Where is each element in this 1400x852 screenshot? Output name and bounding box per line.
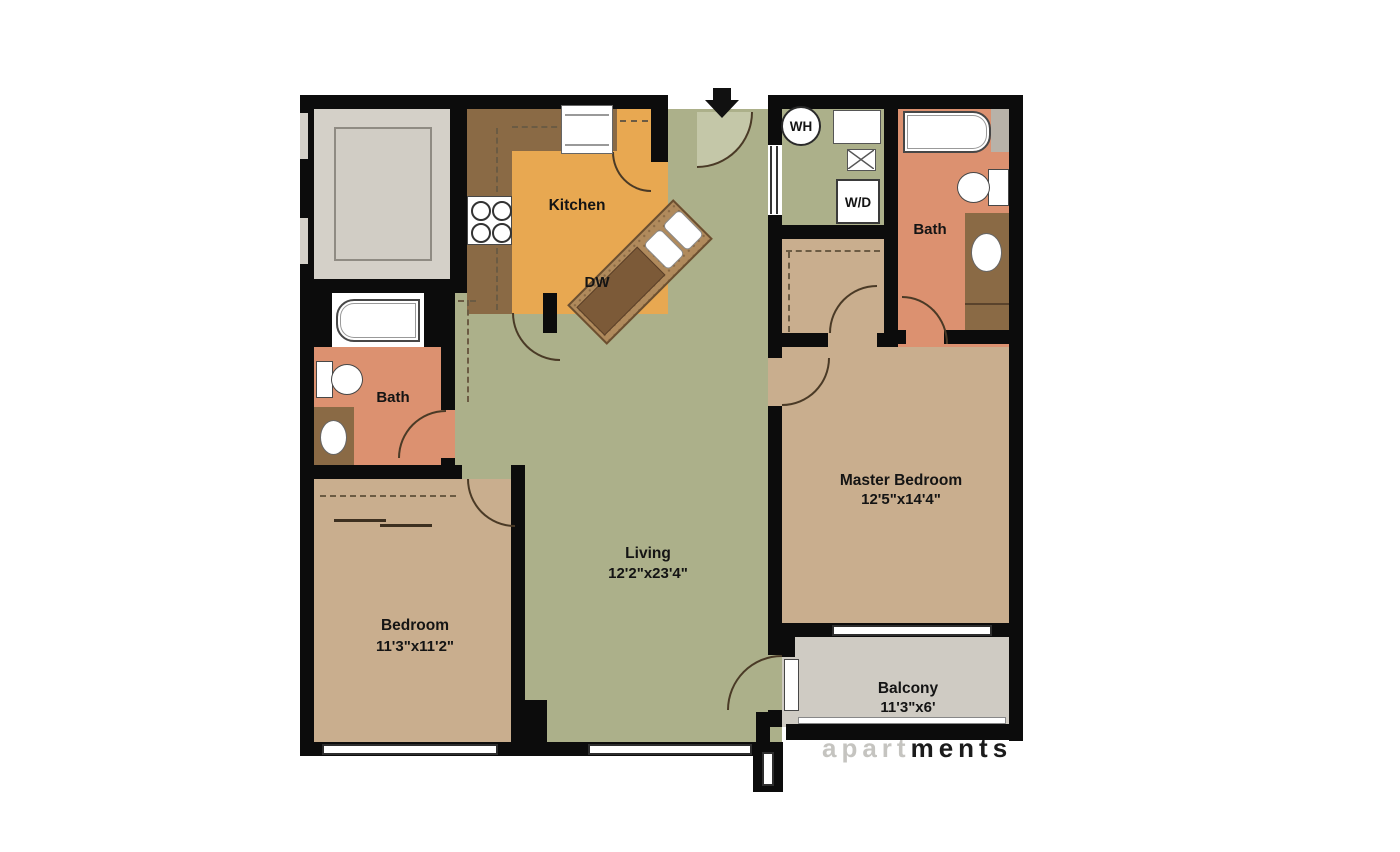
vanity-divider-line: [965, 303, 1009, 305]
living-dims: 12'2"x23'4": [578, 565, 718, 582]
cabinet-dash-line: [496, 248, 498, 310]
wall-segment: [768, 225, 898, 239]
entry-arrow-icon: [705, 100, 739, 118]
master-bedroom-label: Master Bedroom: [812, 472, 990, 490]
wall-segment: [525, 700, 547, 756]
balcony-rail: [798, 717, 1006, 724]
balcony-label: Balcony: [848, 680, 968, 698]
living-label: Living: [588, 545, 708, 563]
washer-dryer-icon: W/D: [836, 179, 880, 224]
walkin-closet-rod-dash: [786, 250, 880, 252]
watermark-light: apart: [822, 733, 911, 763]
bedroom-dims: 11'3"x11'2": [345, 638, 485, 655]
hall-closet-dash: [467, 300, 469, 402]
wall-segment: [300, 95, 314, 756]
wall-segment: [768, 710, 782, 727]
walkin-closet-rod-dash: [788, 252, 790, 332]
toilet-bowl-icon: [957, 172, 990, 203]
floor-plan: DW WH W/D Kitchen Bath Bath Living 12'2"…: [0, 0, 1400, 852]
kitchen-sink-icon: [561, 105, 613, 154]
living-window: [588, 744, 752, 755]
dishwasher-label: DW: [575, 274, 619, 291]
utility-bifold-door-line: [770, 146, 772, 214]
hall-closet-dash: [458, 300, 476, 302]
stove-burner-icon: [471, 201, 491, 221]
crossed-box-icon: [847, 149, 876, 171]
wall-segment: [441, 293, 455, 410]
vanity-sink-icon: [971, 233, 1002, 272]
second-bath-label: Bath: [358, 389, 428, 406]
wall-segment: [441, 458, 455, 465]
watermark: apartments: [822, 733, 1012, 764]
toilet-tank-icon: [988, 169, 1009, 206]
wall-segment: [768, 215, 782, 358]
wall-segment: [768, 95, 782, 145]
balcony-dims: 11'3"x6': [848, 699, 968, 716]
wall-segment: [1009, 95, 1023, 741]
stove-burner-icon: [492, 223, 512, 243]
wall-segment: [782, 333, 828, 347]
stove-burner-icon: [471, 223, 491, 243]
closet-slider-line: [334, 519, 386, 522]
wall-segment: [768, 637, 795, 657]
wall-segment: [450, 109, 467, 293]
water-heater-icon: WH: [781, 106, 821, 146]
wall-segment: [768, 406, 782, 655]
kitchen-label: Kitchen: [527, 197, 627, 215]
bathtub-icon: [903, 111, 991, 153]
cabinet-dash-line: [496, 128, 498, 192]
master-bath-nook: [991, 109, 1009, 152]
master-bedroom-dims: 12'5"x14'4": [826, 491, 976, 508]
vanity-sink-icon: [320, 420, 347, 455]
pantry-shelf-dash: [620, 120, 648, 122]
closet-slider-line: [380, 524, 432, 527]
utility-counter: [833, 110, 881, 144]
bathtub-icon: [336, 299, 420, 342]
master-bedroom-window: [832, 625, 992, 636]
utility-bifold-door-line: [776, 146, 778, 214]
living-side-window: [762, 752, 774, 786]
wall-segment: [300, 279, 467, 293]
kitchen-sink-line: [565, 114, 609, 116]
wall-segment: [944, 330, 1009, 344]
wall-segment: [300, 465, 462, 479]
stove-burner-icon: [492, 201, 512, 221]
patio-inner-outline: [334, 127, 432, 261]
balcony-door-leaf: [784, 659, 799, 711]
bedroom-label: Bedroom: [355, 617, 475, 635]
wall-segment: [756, 712, 770, 742]
wall-segment: [314, 293, 332, 347]
bedroom-closet-rod-dash: [320, 495, 456, 497]
master-bath-label: Bath: [895, 221, 965, 238]
master-bedroom-door-gap: [768, 358, 782, 406]
kitchen-sink-line: [565, 144, 609, 146]
wall-notch: [300, 218, 308, 264]
wall-notch: [300, 113, 308, 159]
watermark-dark: ments: [911, 733, 1013, 763]
wall-segment: [651, 95, 668, 162]
wall-segment: [424, 293, 441, 347]
bedroom-window: [322, 744, 498, 755]
